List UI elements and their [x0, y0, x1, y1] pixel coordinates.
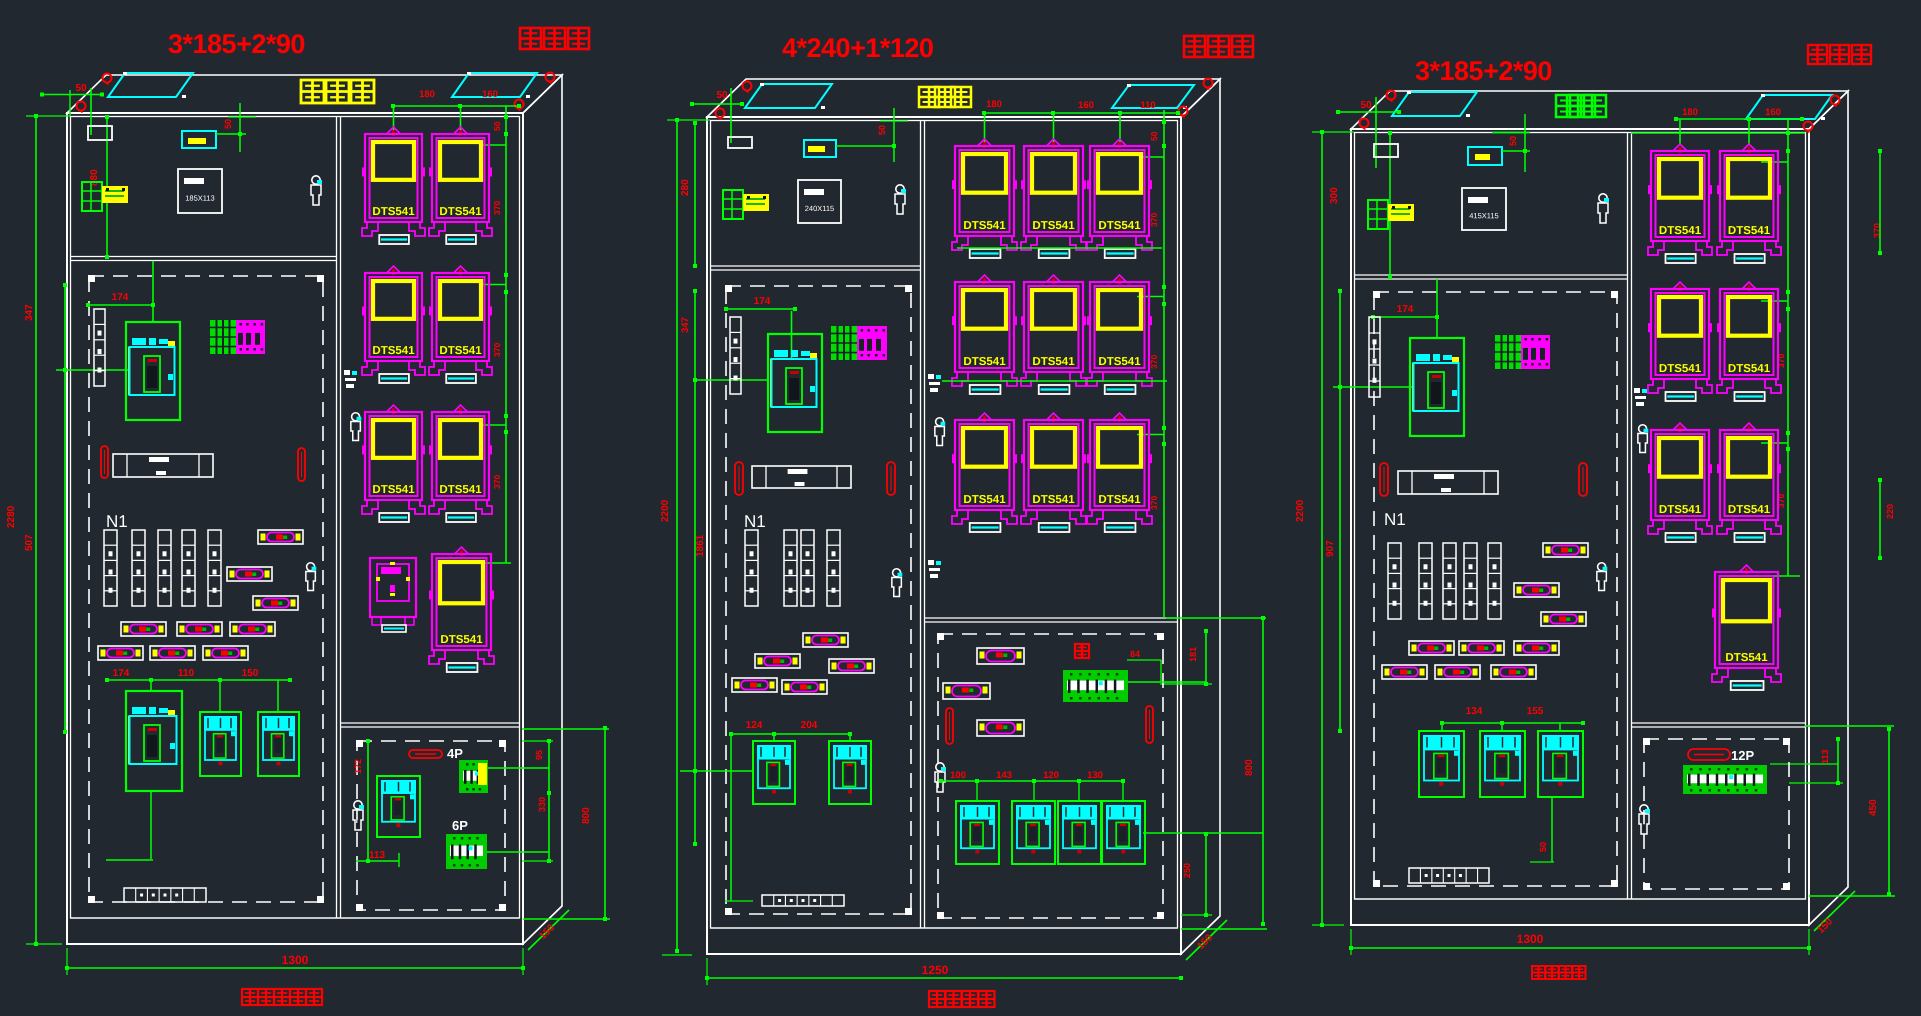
svg-text:174: 174	[112, 292, 129, 303]
svg-text:DTS541: DTS541	[439, 484, 482, 496]
svg-text:DTS541: DTS541	[1032, 356, 1075, 368]
svg-text:95: 95	[534, 750, 544, 760]
svg-text:N1: N1	[1384, 510, 1406, 529]
svg-text:240X115: 240X115	[805, 204, 834, 213]
svg-text:3*185+2*90: 3*185+2*90	[1415, 56, 1552, 86]
svg-text:2280: 2280	[6, 505, 17, 528]
svg-text:50: 50	[1538, 842, 1548, 852]
svg-text:110: 110	[178, 668, 195, 679]
svg-text:370: 370	[492, 201, 502, 215]
svg-text:330: 330	[537, 797, 547, 812]
svg-text:280: 280	[680, 179, 691, 196]
svg-text:160: 160	[1765, 107, 1781, 118]
svg-text:174: 174	[754, 296, 771, 307]
svg-text:800: 800	[1244, 759, 1255, 776]
svg-text:507: 507	[24, 534, 35, 551]
svg-text:DTS541: DTS541	[1728, 225, 1771, 237]
svg-text:250: 250	[1182, 863, 1192, 878]
svg-text:DTS541: DTS541	[1728, 504, 1771, 516]
svg-text:6P: 6P	[452, 818, 468, 833]
svg-text:DTS541: DTS541	[1725, 652, 1768, 664]
svg-text:4*240+1*120: 4*240+1*120	[782, 33, 933, 63]
svg-text:1300: 1300	[1517, 932, 1544, 946]
svg-text:DTS541: DTS541	[372, 206, 415, 218]
svg-text:50: 50	[1149, 131, 1159, 141]
svg-text:DTS541: DTS541	[1032, 220, 1075, 232]
svg-text:134: 134	[1466, 706, 1483, 717]
svg-text:120: 120	[1043, 770, 1059, 781]
svg-text:113: 113	[1820, 749, 1830, 764]
svg-text:DTS541: DTS541	[1098, 494, 1141, 506]
svg-text:204: 204	[801, 720, 818, 731]
svg-text:3*185+2*90: 3*185+2*90	[168, 29, 305, 59]
svg-text:DTS541: DTS541	[1659, 363, 1702, 375]
svg-text:800: 800	[581, 807, 592, 824]
svg-text:370: 370	[1149, 496, 1159, 510]
svg-text:DTS541: DTS541	[1728, 363, 1771, 375]
svg-text:DTS541: DTS541	[963, 494, 1006, 506]
svg-text:2200: 2200	[660, 499, 671, 522]
svg-text:50: 50	[716, 90, 728, 101]
svg-text:124: 124	[746, 720, 763, 731]
svg-text:50: 50	[877, 125, 887, 135]
svg-text:300: 300	[1329, 187, 1340, 204]
svg-text:12P: 12P	[1731, 748, 1754, 763]
svg-text:415X115: 415X115	[1469, 211, 1498, 220]
svg-text:DTS541: DTS541	[372, 345, 415, 357]
svg-text:370: 370	[492, 475, 502, 489]
svg-text:2200: 2200	[1295, 499, 1306, 522]
svg-text:174: 174	[1397, 304, 1414, 315]
svg-text:DTS541: DTS541	[439, 206, 482, 218]
svg-text:N1: N1	[106, 512, 128, 531]
svg-text:DTS541: DTS541	[963, 356, 1006, 368]
svg-text:150: 150	[242, 668, 259, 679]
svg-text:160: 160	[1078, 100, 1094, 111]
svg-text:347: 347	[680, 317, 691, 333]
svg-text:113: 113	[369, 850, 386, 861]
svg-text:DTS541: DTS541	[1659, 225, 1702, 237]
svg-text:50: 50	[75, 83, 87, 94]
svg-text:185X113: 185X113	[185, 194, 214, 203]
svg-text:160: 160	[482, 89, 498, 100]
svg-text:1250: 1250	[922, 963, 949, 977]
svg-text:DTS541: DTS541	[440, 634, 483, 646]
svg-text:174: 174	[113, 668, 130, 679]
svg-text:370: 370	[492, 343, 502, 357]
svg-text:DTS541: DTS541	[963, 220, 1006, 232]
svg-text:180: 180	[986, 99, 1002, 110]
svg-text:DTS541: DTS541	[1098, 356, 1141, 368]
svg-text:130: 130	[1087, 770, 1103, 781]
svg-text:220: 220	[1885, 504, 1895, 519]
svg-text:370: 370	[1149, 213, 1159, 227]
svg-text:172: 172	[353, 759, 363, 774]
svg-text:50: 50	[492, 121, 502, 131]
svg-text:450: 450	[1868, 799, 1879, 816]
svg-text:110: 110	[1140, 100, 1155, 111]
svg-text:DTS541: DTS541	[1032, 494, 1075, 506]
svg-text:4P: 4P	[447, 746, 463, 761]
svg-text:180: 180	[419, 89, 435, 100]
svg-text:180: 180	[1682, 107, 1698, 118]
svg-text:907: 907	[1325, 540, 1336, 557]
svg-text:DTS541: DTS541	[1659, 504, 1702, 516]
svg-text:50: 50	[1360, 100, 1372, 111]
svg-text:1300: 1300	[282, 953, 309, 967]
svg-text:DTS541: DTS541	[439, 345, 482, 357]
svg-text:155: 155	[1527, 706, 1544, 717]
svg-text:181: 181	[1188, 647, 1198, 662]
svg-text:DTS541: DTS541	[1098, 220, 1141, 232]
svg-text:100: 100	[950, 770, 966, 781]
svg-text:347: 347	[24, 304, 35, 321]
svg-text:N1: N1	[744, 512, 766, 531]
svg-text:DTS541: DTS541	[372, 484, 415, 496]
svg-text:1861: 1861	[695, 534, 706, 557]
svg-text:143: 143	[996, 770, 1012, 781]
svg-text:370: 370	[1149, 355, 1159, 369]
svg-text:50: 50	[223, 119, 233, 129]
svg-text:50: 50	[1508, 136, 1518, 146]
svg-text:84: 84	[1130, 649, 1140, 659]
